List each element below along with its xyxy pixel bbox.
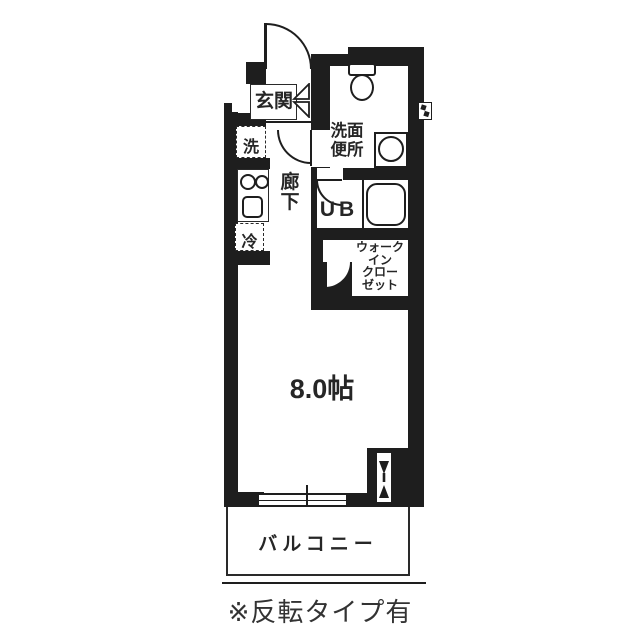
main-room-label: 8.0帖	[262, 367, 382, 406]
closet-doorway	[323, 240, 352, 262]
entrance-door-arc	[266, 23, 312, 69]
washroom-door-arc	[277, 130, 311, 164]
washroom-door-leaf	[310, 130, 312, 166]
wall-right-outer	[408, 54, 424, 507]
balcony-area: バルコニー	[226, 507, 410, 576]
ground-line	[222, 582, 426, 584]
toilet-bowl	[350, 74, 374, 101]
washroom-label: 洗面 便所	[326, 122, 368, 160]
closet-label-line1: ウォーク	[352, 241, 408, 254]
closet-label-line4: ゼット	[352, 279, 408, 292]
ac-symbol-icon	[377, 453, 391, 502]
floorplan-canvas: 玄関 洗面 便所 UB ウォーク イン クロー ゼット 洗 冷 廊 下 8.0帖	[0, 0, 640, 640]
wall-entry-block	[246, 62, 266, 84]
washroom-label-line1: 洗面	[326, 122, 368, 141]
closet-label-line3: クロー	[352, 266, 408, 279]
fridge-label: 冷	[235, 228, 264, 252]
wall-vent-icon	[418, 102, 432, 120]
bathtub	[366, 183, 406, 226]
wall-notch	[232, 103, 246, 112]
wall-corner-block-br	[367, 448, 424, 493]
genkan-label: 玄関	[252, 86, 296, 113]
stove-burner-right	[255, 175, 269, 189]
entrance-door-leaf	[264, 23, 267, 69]
closet-label: ウォーク イン クロー ゼット	[352, 241, 408, 291]
hallway-label-char1: 廊	[278, 173, 302, 193]
hallway-label: 廊 下	[278, 173, 302, 213]
wall-kitchen-lower	[230, 251, 270, 265]
main-window-midline	[259, 500, 346, 501]
wall-kitchen-upper	[233, 158, 270, 169]
kitchen-sink	[242, 196, 263, 218]
washer-label: 洗	[236, 133, 266, 157]
closet-door-leaf	[325, 262, 327, 289]
ub-door-leaf	[316, 179, 342, 181]
basin-bowl	[378, 136, 404, 162]
unit-bath-label: UB	[315, 198, 363, 222]
caption-text: ※反転タイプ有	[213, 592, 427, 629]
hallway-label-char2: 下	[278, 193, 302, 213]
stove-burner-left	[240, 174, 256, 190]
washroom-label-line2: 便所	[326, 141, 368, 160]
genkan-step-edge	[266, 121, 311, 123]
balcony-label: バルコニー	[228, 529, 408, 556]
